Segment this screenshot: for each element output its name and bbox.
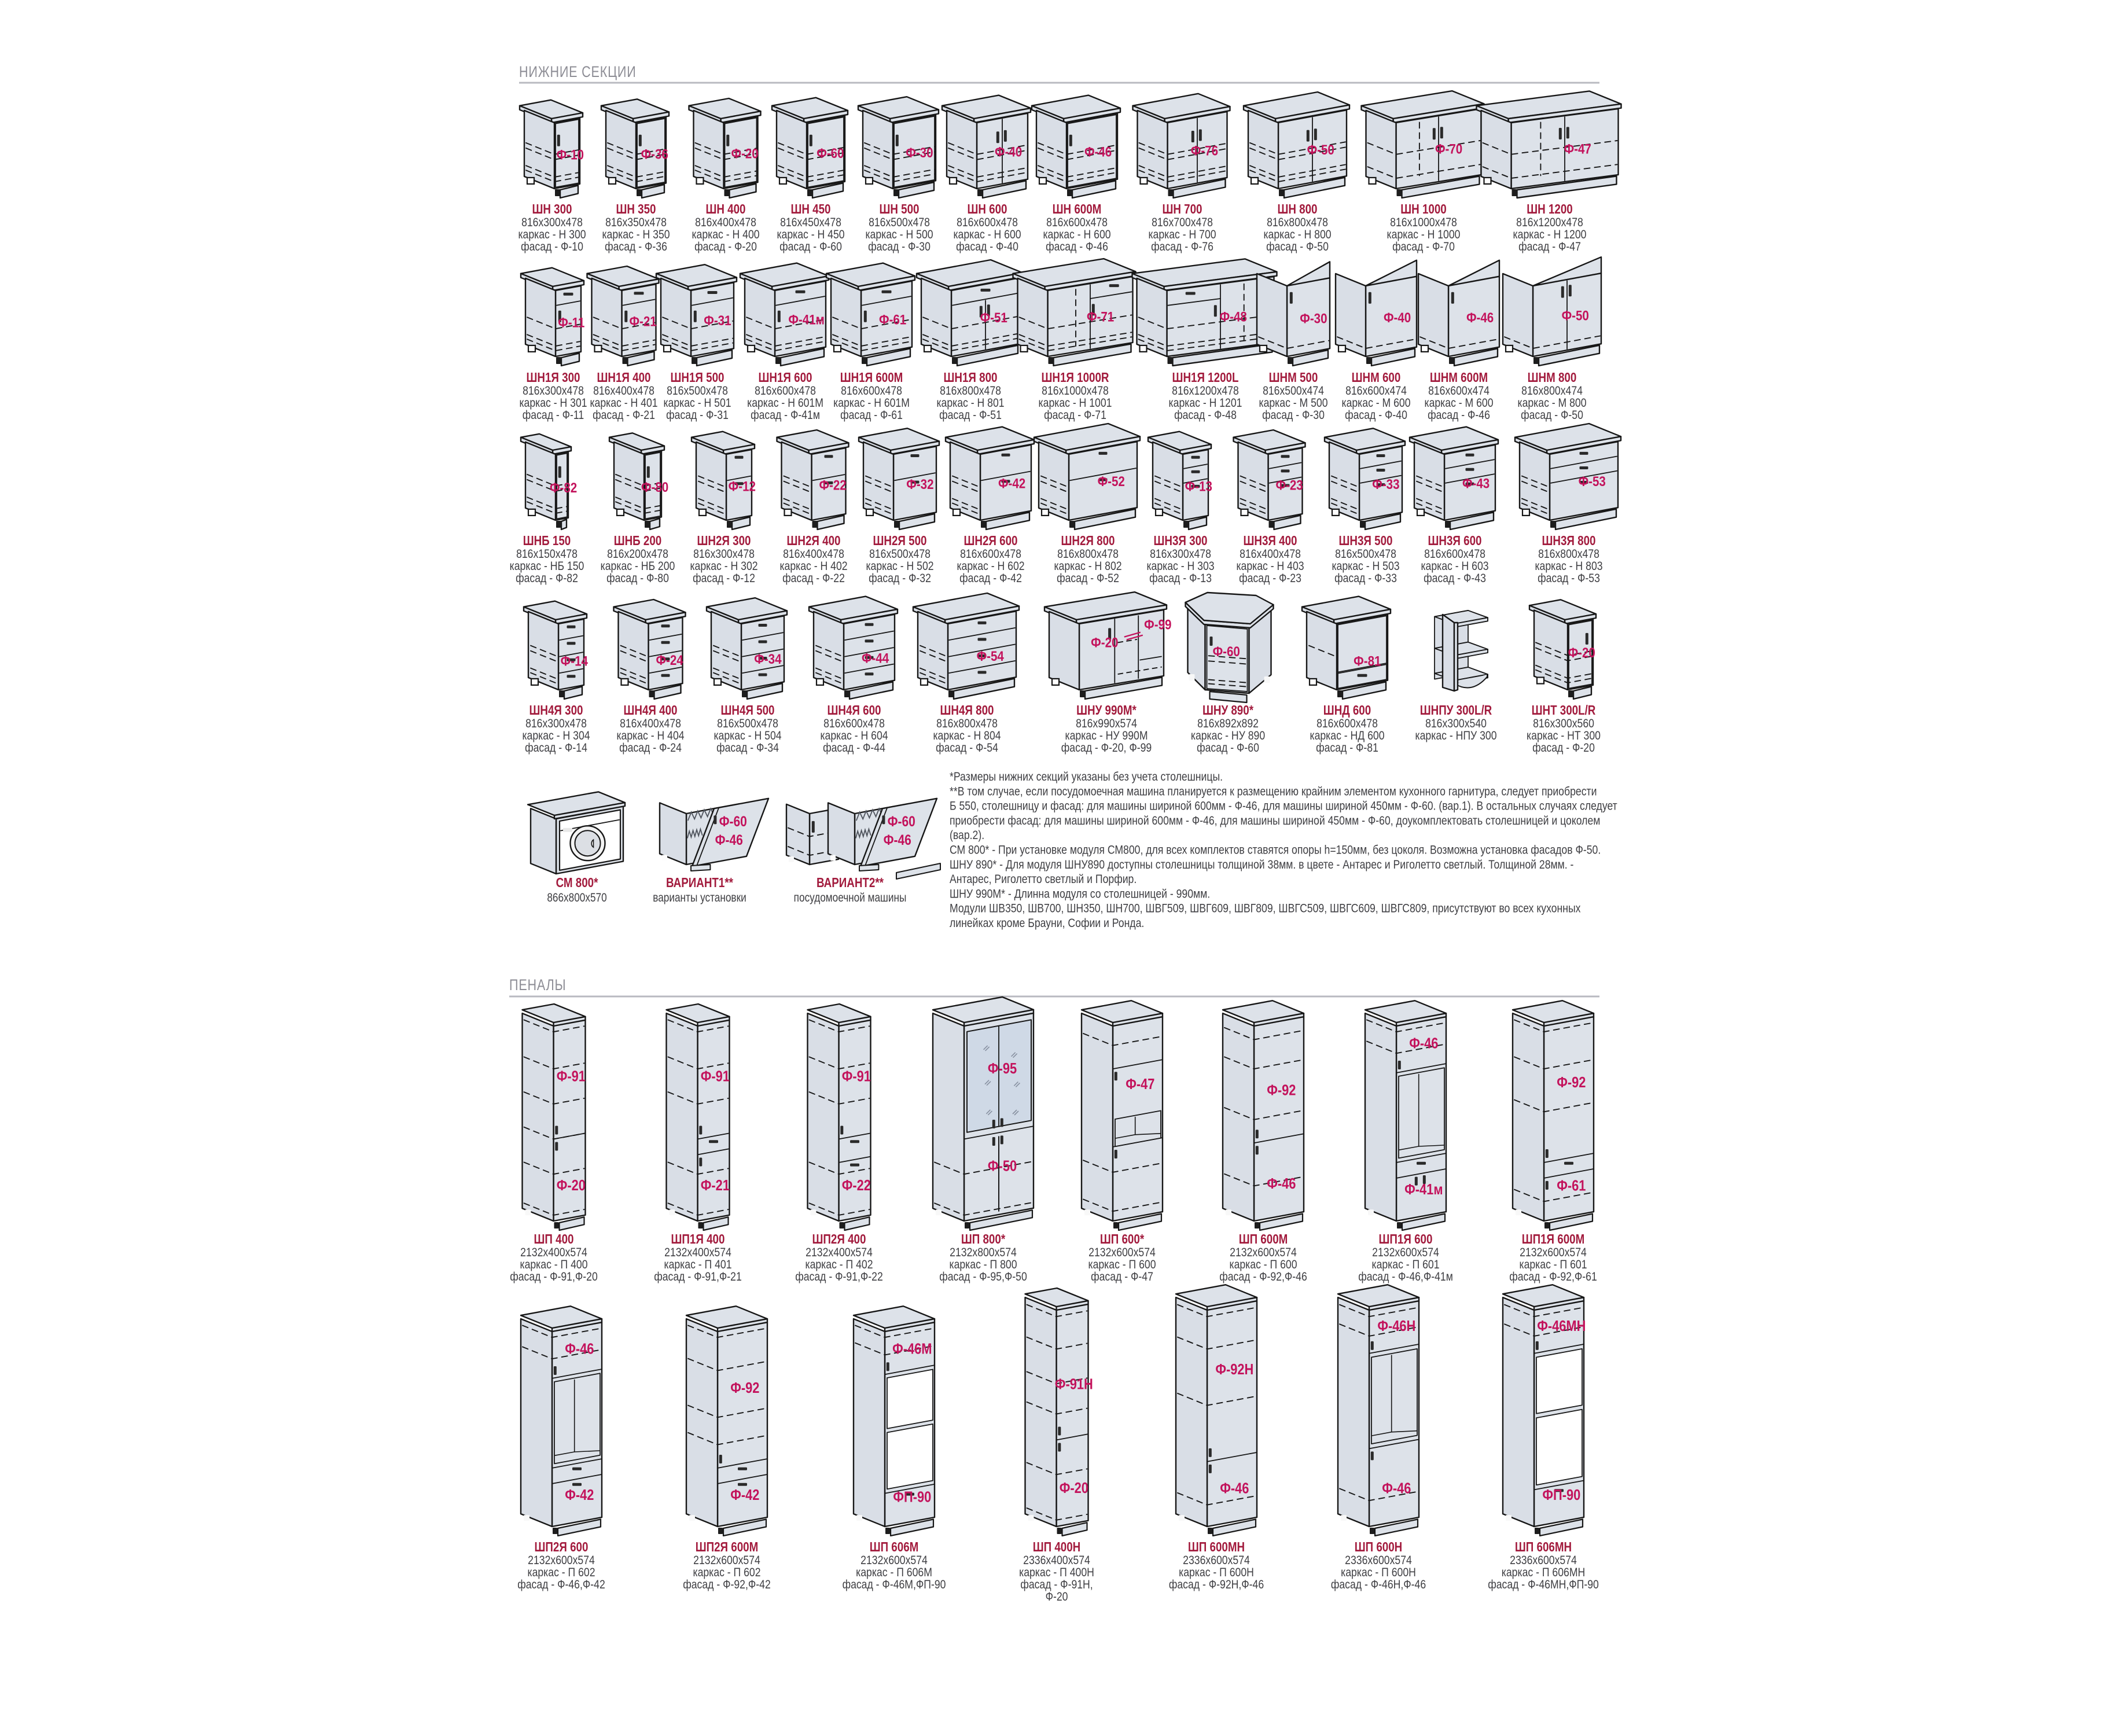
svg-text:каркас - НПУ 300: каркас - НПУ 300 (1415, 729, 1497, 742)
svg-text:Ф-41м: Ф-41м (1404, 1181, 1443, 1198)
svg-text:Ф-50: Ф-50 (1307, 142, 1334, 157)
svg-text:Ф-50: Ф-50 (1562, 308, 1589, 323)
svg-text:Ф-48: Ф-48 (1220, 309, 1247, 325)
svg-text:фасад - Ф-61: фасад - Ф-61 (840, 408, 903, 422)
svg-text:фасад - Ф-41м: фасад - Ф-41м (751, 408, 820, 422)
svg-text:фасад - Ф-81: фасад - Ф-81 (1316, 741, 1378, 755)
svg-text:ПЕНАЛЫ: ПЕНАЛЫ (509, 977, 566, 994)
svg-text:Ф-71: Ф-71 (1087, 309, 1114, 325)
svg-text:фасад - Ф-46,Ф-41м: фасад - Ф-46,Ф-41м (1358, 1270, 1453, 1283)
svg-text:Ф-34: Ф-34 (754, 651, 782, 667)
svg-text:ШНУ 990М* - Длинна модуля со с: ШНУ 990М* - Длинна модуля со столешницей… (950, 887, 1210, 901)
svg-text:ВАРИАНТ2**: ВАРИАНТ2** (817, 875, 884, 891)
svg-text:Ф-61: Ф-61 (879, 312, 906, 328)
svg-text:Ф-82: Ф-82 (550, 480, 577, 495)
svg-text:ШП1Я 600: ШП1Я 600 (1379, 1231, 1433, 1247)
svg-text:ШН2Я 800: ШН2Я 800 (1061, 533, 1115, 549)
svg-text:фасад - Ф-34: фасад - Ф-34 (716, 741, 779, 755)
svg-text:Ф-13: Ф-13 (1185, 479, 1212, 494)
svg-text:Ф-20: Ф-20 (557, 1177, 586, 1194)
svg-text:фасад - Ф-23: фасад - Ф-23 (1239, 571, 1301, 585)
svg-text:ШН3Я 400: ШН3Я 400 (1244, 533, 1297, 549)
svg-text:Ф-31: Ф-31 (704, 312, 731, 328)
svg-text:ШН1Я 400: ШН1Я 400 (597, 370, 651, 385)
svg-text:СМ 800* - При установке модуля: СМ 800* - При установке модуля СМ800, дл… (950, 843, 1601, 857)
svg-text:ШНТ 300L/R: ШНТ 300L/R (1532, 703, 1596, 718)
svg-text:фасад - Ф-20: фасад - Ф-20 (694, 240, 757, 253)
svg-text:фасад - Ф-92,Ф-61: фасад - Ф-92,Ф-61 (1509, 1270, 1597, 1283)
svg-text:ШНПУ 300L/R: ШНПУ 300L/R (1420, 703, 1492, 718)
svg-text:фасад - Ф-22: фасад - Ф-22 (782, 571, 845, 585)
svg-text:Б 550, столешницу и фасад: для: Б 550, столешницу и фасад: для машины ши… (950, 799, 1617, 813)
svg-text:Ф-42: Ф-42 (730, 1487, 759, 1503)
svg-text:ШН 600: ШН 600 (967, 201, 1007, 217)
svg-text:ШНУ 890* - Для модуля ШНУ890 д: ШНУ 890* - Для модуля ШНУ890 доступны ст… (950, 858, 1573, 871)
svg-text:фасад - Ф-92Н,Ф-46: фасад - Ф-92Н,Ф-46 (1169, 1577, 1264, 1591)
svg-text:Ф-92Н: Ф-92Н (1215, 1361, 1253, 1378)
svg-text:ШНД 600: ШНД 600 (1323, 703, 1371, 718)
svg-text:Ф-50: Ф-50 (988, 1158, 1017, 1175)
svg-text:ШН2Я 600: ШН2Я 600 (964, 533, 1018, 549)
svg-text:фасад - Ф-71: фасад - Ф-71 (1044, 408, 1106, 422)
svg-text:Ф-60: Ф-60 (888, 813, 915, 829)
svg-text:фасад - Ф-30: фасад - Ф-30 (868, 240, 931, 253)
svg-text:Ф-91: Ф-91 (842, 1068, 871, 1085)
svg-text:Ф-24: Ф-24 (656, 652, 683, 668)
svg-text:Ф-22: Ф-22 (819, 477, 846, 493)
svg-text:фасад - Ф-91,Ф-20: фасад - Ф-91,Ф-20 (510, 1270, 598, 1283)
svg-text:фасад - Ф-60: фасад - Ф-60 (779, 240, 842, 253)
svg-text:Ф-21: Ф-21 (629, 314, 656, 329)
svg-text:Ф-33: Ф-33 (1372, 476, 1399, 492)
svg-text:фасад - Ф-92,Ф-46: фасад - Ф-92,Ф-46 (1219, 1270, 1307, 1283)
svg-text:фасад - Ф-12: фасад - Ф-12 (693, 571, 755, 585)
svg-text:фасад - Ф-48: фасад - Ф-48 (1174, 408, 1237, 422)
svg-text:Модули ШВ350, ШВ700, ШН350, ШН: Модули ШВ350, ШВ700, ШН350, ШН700, ШВГ50… (950, 902, 1581, 915)
svg-text:ШНБ 150: ШНБ 150 (523, 533, 571, 549)
svg-text:фасад - Ф-47: фасад - Ф-47 (1091, 1270, 1153, 1283)
svg-text:фасад - Ф-31: фасад - Ф-31 (666, 408, 729, 422)
svg-text:фасад - Ф-52: фасад - Ф-52 (1057, 571, 1119, 585)
svg-text:Ф-61: Ф-61 (1557, 1178, 1586, 1194)
svg-text:ШН 700: ШН 700 (1162, 201, 1202, 217)
svg-text:Ф-10: Ф-10 (557, 147, 584, 163)
svg-text:Ф-91Н: Ф-91Н (1055, 1376, 1093, 1393)
svg-text:ШН2Я 400: ШН2Я 400 (787, 533, 841, 549)
svg-text:варианты установки: варианты установки (653, 892, 746, 905)
svg-text:Ф-52: Ф-52 (1098, 473, 1125, 489)
svg-text:(вар.2).: (вар.2). (950, 829, 984, 843)
svg-text:Ф-11: Ф-11 (558, 315, 584, 330)
svg-text:Ф-46: Ф-46 (884, 832, 911, 848)
svg-text:ШН4Я 500: ШН4Я 500 (721, 703, 775, 718)
svg-text:ШН 400: ШН 400 (705, 201, 745, 217)
svg-text:Ф-20: Ф-20 (1091, 635, 1118, 650)
svg-text:Антарес, Риголетто светлый и П: Антарес, Риголетто светлый и Порфир. (950, 873, 1137, 887)
svg-text:Ф-99: Ф-99 (1144, 617, 1171, 632)
svg-text:*Размеры нижних секций указаны: *Размеры нижних секций указаны без учета… (950, 770, 1223, 784)
svg-text:фасад - Ф-91,Ф-21: фасад - Ф-91,Ф-21 (654, 1270, 742, 1283)
svg-text:фасад - Ф-95,Ф-50: фасад - Ф-95,Ф-50 (939, 1270, 1027, 1283)
svg-text:ШП 600МН: ШП 600МН (1188, 1539, 1245, 1555)
svg-text:ШН3Я 500: ШН3Я 500 (1339, 533, 1393, 549)
svg-text:ШП 600*: ШП 600* (1100, 1231, 1145, 1247)
svg-text:ШН1Я 500: ШН1Я 500 (671, 370, 725, 385)
svg-text:Ф-42: Ф-42 (998, 476, 1025, 491)
svg-text:Ф-12: Ф-12 (729, 479, 756, 494)
svg-text:фасад - Ф-50: фасад - Ф-50 (1521, 408, 1583, 422)
svg-text:Ф-46: Ф-46 (1084, 144, 1112, 160)
svg-text:Ф-23: Ф-23 (1275, 477, 1303, 493)
svg-text:фасад - Ф-43: фасад - Ф-43 (1424, 571, 1486, 585)
svg-text:ВАРИАНТ1**: ВАРИАНТ1** (666, 875, 734, 891)
svg-text:Ф-36: Ф-36 (641, 146, 668, 162)
svg-text:ШН1Я 600М: ШН1Я 600М (840, 370, 903, 385)
svg-text:ШП 600М: ШП 600М (1239, 1231, 1288, 1247)
svg-text:ШН 500: ШН 500 (879, 201, 919, 217)
svg-text:фасад - Ф-82: фасад - Ф-82 (516, 571, 578, 585)
svg-text:Ф-47: Ф-47 (1564, 141, 1591, 157)
svg-text:Ф-43: Ф-43 (1462, 476, 1490, 491)
svg-text:Ф-22: Ф-22 (842, 1177, 871, 1194)
svg-text:НИЖНИЕ СЕКЦИИ: НИЖНИЕ СЕКЦИИ (519, 64, 637, 81)
svg-text:фасад - Ф-60: фасад - Ф-60 (1197, 741, 1259, 755)
svg-text:Ф-46: Ф-46 (1466, 310, 1494, 325)
svg-text:фасад - Ф-91,Ф-22: фасад - Ф-91,Ф-22 (795, 1270, 883, 1283)
svg-text:Ф-70: Ф-70 (1435, 141, 1462, 157)
svg-text:ШП 800*: ШП 800* (961, 1231, 1006, 1247)
svg-text:866х800х570: 866х800х570 (547, 892, 606, 905)
svg-text:ШН3Я 600: ШН3Я 600 (1428, 533, 1482, 549)
svg-text:Ф-47: Ф-47 (1126, 1076, 1154, 1093)
svg-text:ШП2Я 600: ШП2Я 600 (535, 1539, 589, 1555)
svg-text:фасад - Ф-44: фасад - Ф-44 (823, 741, 885, 755)
svg-text:фасад - Ф-30: фасад - Ф-30 (1262, 408, 1325, 422)
svg-text:ШН3Я 300: ШН3Я 300 (1154, 533, 1208, 549)
svg-text:Ф-20: Ф-20 (1046, 1590, 1068, 1603)
svg-text:Ф-53: Ф-53 (1579, 473, 1606, 489)
svg-text:Ф-40: Ф-40 (1384, 310, 1411, 325)
svg-text:ШНМ 500: ШНМ 500 (1269, 370, 1318, 385)
svg-text:Ф-46: Ф-46 (1382, 1480, 1411, 1497)
svg-text:фасад - Ф-21: фасад - Ф-21 (593, 408, 655, 422)
svg-text:фасад - Ф-76: фасад - Ф-76 (1151, 240, 1213, 253)
svg-text:фасад - Ф-46М,ФП-90: фасад - Ф-46М,ФП-90 (843, 1577, 946, 1591)
svg-text:Ф-46: Ф-46 (715, 832, 743, 848)
svg-text:ШН 350: ШН 350 (616, 201, 656, 217)
svg-text:Ф-20: Ф-20 (1060, 1480, 1088, 1496)
svg-text:Ф-60: Ф-60 (719, 813, 747, 829)
svg-text:ШП 400: ШП 400 (534, 1231, 574, 1247)
svg-text:Ф-30: Ф-30 (906, 145, 933, 160)
svg-text:Ф-81: Ф-81 (1354, 653, 1381, 669)
svg-text:ШП 606МН: ШП 606МН (1515, 1539, 1572, 1555)
svg-text:фасад - Ф-51: фасад - Ф-51 (939, 408, 1002, 422)
svg-text:Ф-30: Ф-30 (1300, 311, 1327, 326)
svg-text:ШНУ 890*: ШНУ 890* (1202, 703, 1254, 718)
svg-text:ШН 1000: ШН 1000 (1400, 201, 1446, 217)
svg-text:Ф-40: Ф-40 (995, 144, 1022, 160)
svg-text:ШП1Я 400: ШП1Я 400 (671, 1231, 725, 1247)
svg-text:Ф-80: Ф-80 (641, 479, 668, 495)
svg-text:ШНБ 200: ШНБ 200 (614, 533, 662, 549)
svg-text:ШН 300: ШН 300 (532, 201, 572, 217)
svg-text:ШП2Я 600М: ШП2Я 600М (696, 1539, 759, 1555)
svg-text:фасад - Ф-46Н,Ф-46: фасад - Ф-46Н,Ф-46 (1331, 1577, 1426, 1591)
svg-text:фасад - Ф-42: фасад - Ф-42 (959, 571, 1022, 585)
svg-text:Ф-46МН: Ф-46МН (1537, 1318, 1586, 1334)
svg-text:фасад - Ф-36: фасад - Ф-36 (605, 240, 667, 253)
svg-text:фасад - Ф-33: фасад - Ф-33 (1334, 571, 1397, 585)
svg-text:**В том случае, если посудомое: **В том случае, если посудомоечная машин… (950, 785, 1597, 799)
svg-text:фасад - Ф-54: фасад - Ф-54 (936, 741, 998, 755)
svg-text:Ф-92: Ф-92 (730, 1380, 759, 1396)
svg-text:Ф-91: Ф-91 (557, 1068, 586, 1085)
svg-text:ШН2Я 300: ШН2Я 300 (697, 533, 751, 549)
svg-text:ШП 400Н: ШП 400Н (1033, 1539, 1081, 1555)
svg-text:ШНУ 990М*: ШНУ 990М* (1076, 703, 1137, 718)
svg-text:Ф-46: Ф-46 (1409, 1035, 1438, 1052)
svg-text:Ф-46: Ф-46 (1220, 1480, 1249, 1497)
svg-text:ШП1Я 600М: ШП1Я 600М (1522, 1231, 1585, 1247)
svg-text:ШН1Я 300: ШН1Я 300 (527, 370, 580, 385)
svg-text:фасад - Ф-40: фасад - Ф-40 (1345, 408, 1407, 422)
svg-text:линейках кроме Брауни, Софии и: линейках кроме Брауни, Софии и Ронда. (950, 916, 1144, 930)
svg-text:Ф-42: Ф-42 (565, 1487, 594, 1503)
svg-text:ШП2Я 400: ШП2Я 400 (812, 1231, 866, 1247)
svg-text:фасад - Ф-24: фасад - Ф-24 (619, 741, 682, 755)
svg-text:приобрести фасад: для машины ш: приобрести фасад: для машины шириной 600… (950, 814, 1600, 827)
svg-text:Ф-41м: Ф-41м (788, 312, 824, 328)
svg-text:ШН1Я 800: ШН1Я 800 (944, 370, 998, 385)
svg-text:ШН 600М: ШН 600М (1053, 201, 1102, 217)
svg-text:фасад - Ф-47: фасад - Ф-47 (1518, 240, 1581, 253)
svg-text:ШН1Я 1000R: ШН1Я 1000R (1042, 370, 1109, 385)
svg-text:ФП-90: ФП-90 (893, 1489, 931, 1506)
svg-text:Ф-21: Ф-21 (701, 1177, 730, 1194)
svg-text:фасад - Ф-46: фасад - Ф-46 (1428, 408, 1490, 422)
svg-text:Ф-20: Ф-20 (1568, 645, 1595, 661)
svg-text:ШНМ 600М: ШНМ 600М (1430, 370, 1488, 385)
svg-text:фасад - Ф-10: фасад - Ф-10 (521, 240, 583, 253)
svg-text:фасад - Ф-80: фасад - Ф-80 (606, 571, 669, 585)
svg-text:Ф-92: Ф-92 (1267, 1082, 1296, 1099)
svg-text:фасад - Ф-53: фасад - Ф-53 (1538, 571, 1600, 585)
svg-text:Ф-76: Ф-76 (1191, 143, 1218, 159)
svg-text:ШН4Я 400: ШН4Я 400 (624, 703, 678, 718)
svg-text:фасад - Ф-20: фасад - Ф-20 (1532, 741, 1595, 755)
svg-text:фасад - Ф-32: фасад - Ф-32 (869, 571, 931, 585)
svg-text:Ф-32: Ф-32 (906, 476, 933, 492)
svg-text:ШП 606М: ШП 606М (870, 1539, 919, 1555)
svg-text:Ф-91: Ф-91 (701, 1068, 730, 1085)
svg-text:фасад - Ф-46: фасад - Ф-46 (1046, 240, 1108, 253)
svg-text:Ф-46: Ф-46 (565, 1341, 594, 1358)
svg-text:СМ 800*: СМ 800* (556, 875, 598, 891)
svg-text:фасад - Ф-92,Ф-42: фасад - Ф-92,Ф-42 (683, 1577, 771, 1591)
svg-text:ШН4Я 800: ШН4Я 800 (940, 703, 994, 718)
svg-text:ШНМ 800: ШНМ 800 (1528, 370, 1577, 385)
svg-text:ШН 1200: ШН 1200 (1527, 201, 1572, 217)
svg-text:ШН2Я 500: ШН2Я 500 (873, 533, 927, 549)
svg-text:Ф-60: Ф-60 (1213, 643, 1240, 659)
svg-text:ФП-90: ФП-90 (1542, 1487, 1580, 1503)
svg-text:Ф-46М: Ф-46М (892, 1341, 932, 1358)
svg-text:Ф-95: Ф-95 (988, 1060, 1017, 1077)
svg-text:ШН1Я 600: ШН1Я 600 (759, 370, 812, 385)
svg-text:фасад - Ф-14: фасад - Ф-14 (525, 741, 587, 755)
svg-text:ШН 450: ШН 450 (790, 201, 830, 217)
svg-text:фасад - Ф-13: фасад - Ф-13 (1149, 571, 1212, 585)
svg-text:Ф-92: Ф-92 (1557, 1074, 1586, 1091)
svg-text:Ф-44: Ф-44 (862, 650, 889, 666)
svg-text:ШН4Я 600: ШН4Я 600 (828, 703, 881, 718)
svg-text:фасад - Ф-70: фасад - Ф-70 (1392, 240, 1455, 253)
svg-text:посудомоечной машины: посудомоечной машины (794, 892, 907, 905)
svg-text:ШН 800: ШН 800 (1277, 201, 1317, 217)
svg-text:ШН3Я 800: ШН3Я 800 (1542, 533, 1596, 549)
svg-text:Ф-46: Ф-46 (1267, 1175, 1296, 1192)
svg-text:фасад - Ф-11: фасад - Ф-11 (523, 408, 584, 422)
svg-text:фасад - Ф-40: фасад - Ф-40 (956, 240, 1018, 253)
svg-text:Ф-54: Ф-54 (977, 648, 1005, 664)
svg-text:Ф-60: Ф-60 (817, 145, 844, 161)
svg-text:фасад - Ф-46МН,ФП-90: фасад - Ф-46МН,ФП-90 (1488, 1577, 1599, 1591)
svg-text:фасад - Ф-50: фасад - Ф-50 (1266, 240, 1329, 253)
svg-text:Ф-46Н: Ф-46Н (1377, 1318, 1415, 1334)
svg-text:ШН4Я 300: ШН4Я 300 (529, 703, 583, 718)
svg-text:ШНМ 600: ШНМ 600 (1352, 370, 1401, 385)
svg-text:фасад - Ф-20, Ф-99: фасад - Ф-20, Ф-99 (1061, 741, 1152, 755)
svg-text:фасад - Ф-46,Ф-42: фасад - Ф-46,Ф-42 (517, 1577, 605, 1591)
svg-text:ШП 600Н: ШП 600Н (1355, 1539, 1403, 1555)
svg-text:Ф-20: Ф-20 (731, 146, 758, 161)
svg-text:Ф-51: Ф-51 (980, 310, 1007, 325)
svg-text:ШН1Я 1200L: ШН1Я 1200L (1172, 370, 1239, 385)
svg-text:Ф-14: Ф-14 (561, 653, 589, 669)
